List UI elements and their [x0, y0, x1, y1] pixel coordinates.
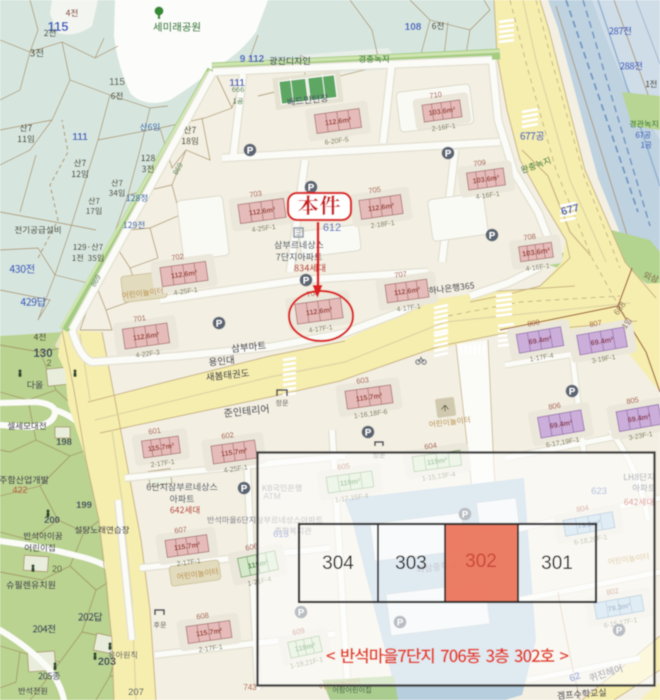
- svg-text:P: P: [489, 230, 496, 241]
- svg-text:603: 603: [356, 375, 370, 386]
- svg-text:604: 604: [424, 441, 438, 452]
- svg-text:707: 707: [394, 269, 408, 280]
- svg-text:20: 20: [52, 564, 62, 574]
- svg-text:301: 301: [541, 553, 573, 574]
- svg-text:P: P: [445, 148, 452, 159]
- svg-text:P: P: [303, 275, 310, 286]
- svg-text:P: P: [365, 427, 372, 438]
- svg-text:709: 709: [473, 158, 487, 169]
- svg-text:304: 304: [322, 553, 354, 574]
- svg-text:607: 607: [174, 525, 188, 536]
- svg-text:207: 207: [128, 687, 144, 698]
- svg-text:P: P: [216, 318, 223, 329]
- svg-text:108: 108: [405, 22, 422, 33]
- svg-text:608: 608: [196, 611, 210, 622]
- svg-text:111: 111: [72, 132, 88, 143]
- svg-text:P: P: [569, 386, 576, 397]
- svg-text:P: P: [247, 145, 254, 156]
- svg-text:303: 303: [395, 553, 427, 574]
- svg-text:710: 710: [429, 90, 443, 101]
- svg-text:703: 703: [249, 189, 263, 200]
- svg-text:9 112: 9 112: [240, 54, 265, 65]
- svg-text:602: 602: [221, 430, 235, 441]
- svg-text:702: 702: [171, 252, 185, 263]
- svg-text:200: 200: [44, 515, 60, 526]
- svg-text:705: 705: [368, 185, 382, 196]
- svg-text:701: 701: [133, 313, 147, 324]
- svg-text:115: 115: [109, 77, 125, 88]
- svg-text:601: 601: [148, 426, 162, 437]
- svg-text:199: 199: [76, 500, 92, 511]
- svg-text:743: 743: [243, 683, 257, 692]
- svg-text:666: 666: [232, 85, 245, 94]
- svg-text:612: 612: [323, 222, 341, 234]
- svg-text:130: 130: [33, 348, 52, 360]
- svg-text:P: P: [308, 182, 315, 193]
- svg-text:P: P: [241, 483, 248, 494]
- svg-text:422: 422: [12, 485, 27, 495]
- svg-text:198: 198: [56, 437, 72, 448]
- svg-text:302: 302: [465, 551, 497, 572]
- svg-text:708: 708: [523, 232, 537, 243]
